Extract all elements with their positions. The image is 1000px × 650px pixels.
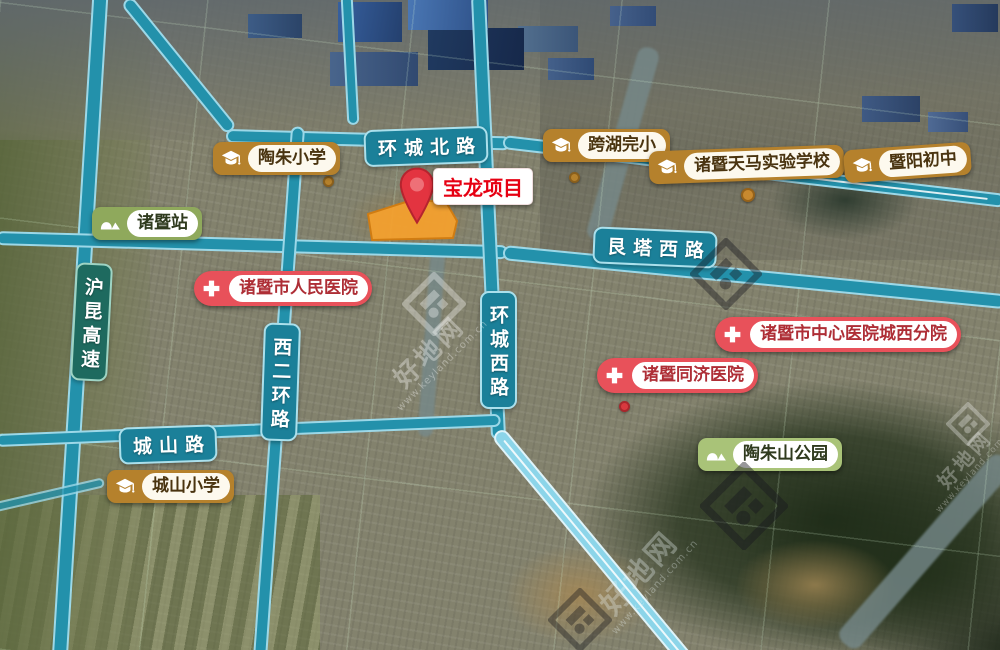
graduation-cap-icon — [843, 154, 879, 178]
poi-dot-tianma-school[interactable] — [741, 188, 755, 202]
road-label-xierhuan: 西二环路 — [260, 322, 301, 441]
poi-school-tianma[interactable]: 诸暨天马实验学校 — [648, 145, 844, 185]
poi-park-taozhushan[interactable]: 陶朱山公园 — [698, 438, 842, 471]
poi-hospital-zhongxin-chengxi[interactable]: 诸暨市中心医院城西分院 — [715, 317, 961, 352]
poi-label: 诸暨站 — [127, 210, 198, 237]
graduation-cap-icon — [543, 135, 578, 157]
poi-label: 诸暨市中心医院城西分院 — [750, 321, 957, 348]
poi-dot-kuahu-school[interactable] — [569, 172, 580, 183]
satellite-map: 环城北路 艮塔西路 城山路 环城西路 西二环路 沪昆高速 陶朱小学 跨湖完小 诸… — [0, 0, 1000, 650]
road-label-huancheng-west: 环城西路 — [480, 291, 517, 409]
poi-label: 暨阳初中 — [878, 145, 968, 178]
poi-label: 诸暨同济医院 — [632, 362, 754, 389]
poi-school-taozhu[interactable]: 陶朱小学 — [213, 142, 340, 175]
graduation-cap-icon — [107, 476, 142, 498]
graduation-cap-icon — [213, 148, 248, 170]
road-label-genta-west: 艮塔西路 — [592, 226, 718, 268]
poi-label: 陶朱山公园 — [733, 441, 838, 468]
road-label-huancheng-north: 环城北路 — [363, 126, 488, 167]
road-label-hukun-expressway: 沪昆高速 — [70, 262, 113, 382]
project-name-label[interactable]: 宝龙项目 — [433, 168, 533, 205]
landscape-mountains-icon — [92, 213, 127, 235]
poi-label: 陶朱小学 — [248, 145, 336, 172]
poi-hospital-tongji[interactable]: 诸暨同济医院 — [597, 358, 758, 393]
graduation-cap-icon — [649, 156, 685, 179]
road-label-chengshan: 城山路 — [118, 424, 217, 464]
poi-label: 诸暨市人民医院 — [229, 275, 368, 302]
medical-cross-icon — [597, 365, 632, 386]
location-pin-icon[interactable] — [399, 167, 435, 225]
poi-station-zhuji[interactable]: 诸暨站 — [92, 207, 202, 240]
poi-hospital-renmin[interactable]: 诸暨市人民医院 — [194, 271, 372, 306]
poi-dot-tongji-hospital[interactable] — [619, 401, 630, 412]
poi-dot-taozhu-school[interactable] — [323, 176, 334, 187]
medical-cross-icon — [715, 324, 750, 345]
poi-school-chengshan[interactable]: 城山小学 — [107, 470, 234, 503]
medical-cross-icon — [194, 278, 229, 299]
poi-label: 诸暨天马实验学校 — [684, 148, 841, 180]
poi-label: 城山小学 — [142, 473, 230, 500]
landscape-mountains-icon — [698, 444, 733, 466]
